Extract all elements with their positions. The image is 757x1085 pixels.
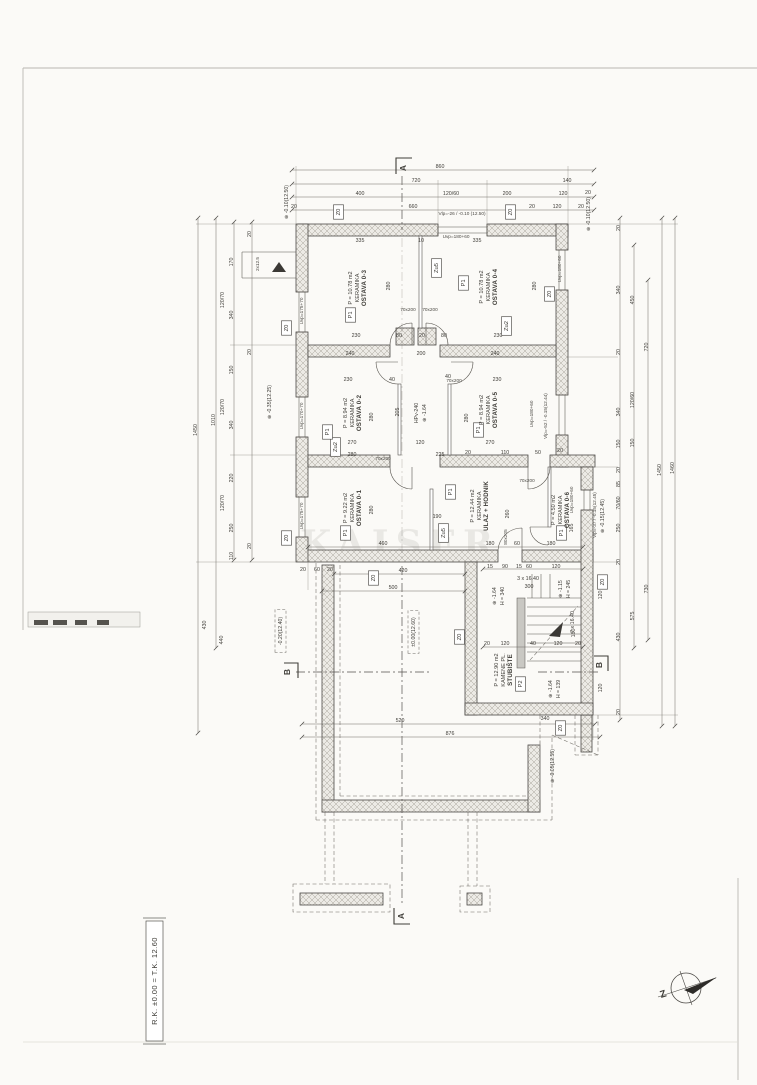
room-area: P = 12.90 m2 <box>494 653 500 686</box>
opening-annotation: Uvp=175+70 <box>299 297 304 324</box>
zone-tag: Z0 <box>598 575 608 589</box>
dimension-label: 10 <box>418 238 424 244</box>
dimension-label: 876 <box>446 731 455 737</box>
zone-tag-label: P1 <box>348 311 354 318</box>
opening-annotation: Uvp=180+60 <box>529 400 534 427</box>
dimension-label: 220 <box>229 474 235 483</box>
section-b-left: B <box>282 669 292 675</box>
dimension-label: 150 <box>616 440 622 449</box>
level-value: ⊕ -0.10(12.50) <box>586 197 592 231</box>
zone-tag-label: P1 <box>476 426 482 433</box>
zone-tag-label: Z0 <box>547 291 553 298</box>
dimension-label: 80 <box>441 333 447 339</box>
dimension-label: 340 <box>229 311 235 320</box>
dimension-label: 1460 <box>670 462 676 474</box>
dimension-label: 300 <box>525 584 534 590</box>
dimension-label: 20 <box>616 559 622 565</box>
level-marker: ±0.00(12.60) <box>408 611 419 654</box>
level-marker: H = 139 <box>556 680 562 698</box>
dimension-label: 430 <box>616 633 622 642</box>
dimension-label: 340 <box>229 421 235 430</box>
dimension-label: 120 <box>553 204 562 210</box>
dimension-label: 260 <box>505 510 511 519</box>
opening-annotation: 2x12.5 <box>255 257 260 271</box>
dimension-label: 500 <box>389 585 398 591</box>
zone-tag: Z0 <box>282 531 292 545</box>
level-marker: ⊕ -0.10(12.50) <box>586 197 592 231</box>
level-value: ⊕ -0.35(12.25) <box>267 385 273 419</box>
level-marker: ⊕ -1.64 <box>492 587 498 605</box>
dimension-label: 180 <box>571 629 577 638</box>
room-name: OSTAVA 0-5 <box>492 391 499 428</box>
dimension-label: 120 <box>554 641 563 647</box>
zone-tag-label: Z0 <box>336 209 342 216</box>
stair-direction-arrow <box>549 622 563 637</box>
zone-tag-label: Zu2 <box>333 442 339 452</box>
zone-tag-label: P1 <box>325 428 331 435</box>
room-name: OSTAVA 0-1 <box>356 489 363 526</box>
dimension-label: 85 <box>616 481 622 487</box>
opening-annotation: 80x205 <box>503 529 508 545</box>
dimension-label: 200 <box>503 191 512 197</box>
dimension-label: 120 <box>416 440 425 446</box>
opening-annotation: Uvp=170+70 <box>299 402 304 429</box>
dimension-label: 270 <box>348 440 357 446</box>
dimension-label: 3 x 16.40 <box>517 576 539 582</box>
dimension-label: 450 <box>630 296 636 305</box>
room-label: P = 12.90 m2KAMENE PL.STUBIŠTE <box>494 653 514 687</box>
dimension-label: 280 <box>369 506 375 515</box>
datum-note: R.K. ±0.00 = T.K. 12.60 <box>150 937 159 1025</box>
floor-plan-drawing: KAISER <box>0 0 757 1080</box>
dimension-label: 20 <box>616 349 622 355</box>
level-marker: H = 245 <box>566 580 572 598</box>
opening-annotation: 70x200 <box>446 378 462 383</box>
room-name: OSTAVA 0-4 <box>492 268 499 305</box>
dimension-label: 20 <box>419 333 425 339</box>
dimension-label: 225 <box>436 452 445 458</box>
dimension-label: 230 <box>352 333 361 339</box>
dimension-label: 340 <box>616 408 622 417</box>
zone-tag-label: P1 <box>343 529 349 536</box>
dimension-label: 340 <box>541 716 550 722</box>
dimension-label: 420 <box>399 568 408 574</box>
zone-tag-label: Z0 <box>284 535 290 542</box>
room-label: P = 8.94 m2KERAMIKAOSTAVA 0-5 <box>479 391 499 428</box>
dimension-label: 20 <box>247 231 253 237</box>
level-marker: -0.20(12.40) <box>275 610 286 653</box>
zone-tag: Zu2 <box>331 438 341 457</box>
room-area: P = 12.44 m2 <box>470 489 476 522</box>
zone-tag: Z0 <box>545 287 555 301</box>
dimension-label: 20 <box>291 204 297 210</box>
dimension-label: 20 <box>300 567 306 573</box>
zone-tag-label: Z0 <box>284 325 290 332</box>
dimension-label: 230 <box>493 377 502 383</box>
zone-tag: P1 <box>323 425 333 439</box>
level-value: ⊕ -0.05(12.55) <box>550 749 556 783</box>
level-value: ⊕ -0.15(12.45) <box>600 499 606 533</box>
zone-tag: Z0 <box>506 205 516 219</box>
left-edge-fragment <box>28 612 140 627</box>
dimension-label: 230 <box>344 377 353 383</box>
level-value: -0.20(12.40) <box>278 617 284 646</box>
level-marker: H = 340 <box>500 587 506 605</box>
dimension-label: 240 <box>346 351 355 357</box>
opening-annotation: 70x200 <box>422 307 438 312</box>
dimension-label: 280 <box>386 282 392 291</box>
dimension-label: 170 <box>229 258 235 267</box>
level-value: ⊕ -1.15 <box>558 580 564 598</box>
opening-annotation: Vlp=-37 / -0.15(12.45) <box>592 492 597 538</box>
level-value: HPv-240 <box>414 403 420 423</box>
dimension-label: 280 <box>369 413 375 422</box>
dimension-label: 110 <box>229 552 235 560</box>
dimension-label: 90 <box>502 564 508 570</box>
dimension-label: 120/70 <box>220 399 226 415</box>
dimension-label: 730 <box>644 585 650 594</box>
dimension-label: 660 <box>409 204 418 210</box>
opening-annotation: Vlp=-52 / -0.15(12.44) <box>543 393 548 439</box>
zone-tag: Z0 <box>455 630 465 644</box>
dimension-label: 20 <box>465 450 471 456</box>
zone-tag-label: Z0 <box>600 579 606 586</box>
room-name: STUBIŠTE <box>506 654 514 686</box>
zone-tag: P1 <box>346 308 356 322</box>
level-value: ⊕ -1.64 <box>492 587 498 605</box>
room-label: P = 9.22 m2KERAMIKAOSTAVA 0-1 <box>343 489 363 526</box>
dimension-label: 150 <box>630 439 636 448</box>
zone-tag-label: P1 <box>448 488 454 495</box>
dimension-label: 120/70 <box>220 292 226 308</box>
dimension-label: 440 <box>219 636 225 645</box>
dimension-label: 20 <box>529 204 535 210</box>
dimension-label: 20 <box>616 709 622 715</box>
level-marker: ⊕ -0.05(12.55) <box>550 749 556 783</box>
dimension-label: 60 <box>526 564 532 570</box>
dimension-label: 120 <box>501 641 510 647</box>
dimension-label: 240 <box>491 351 500 357</box>
dimension-label: 20 <box>616 225 622 231</box>
zone-tag-label: Z0 <box>371 575 377 582</box>
dimension-label: 280 <box>532 282 538 291</box>
dimension-label: 120 <box>559 191 568 197</box>
dimension-label: 1010 <box>211 414 217 426</box>
dimension-label: 50 <box>535 450 541 456</box>
room-area: P = 9.22 m2 <box>343 493 349 523</box>
section-a-bottom: A <box>396 913 406 919</box>
opening-annotation: Uvp=180+60 <box>557 255 562 282</box>
level-marker: ⊕ -0.15(12.45) <box>600 499 606 533</box>
floor-plan-sheet: KAISER <box>0 0 757 1080</box>
opening-annotation: 70x200 <box>400 307 416 312</box>
zone-tag-label: P1 <box>461 279 467 286</box>
dimension-label: 250 <box>229 524 235 533</box>
dimension-label: 20 <box>327 567 333 573</box>
section-b-right: B <box>594 662 604 668</box>
level-marker: ⊕ -1.64 <box>548 680 554 698</box>
room-area: P = 10.78 m2 <box>479 270 485 303</box>
level-value: ⊕ -1.64 <box>422 404 428 422</box>
dimension-label: 40 <box>389 377 395 383</box>
zone-tag: Zu5 <box>439 524 449 543</box>
dimension-label: 150 <box>229 366 235 375</box>
dimension-label: 190 <box>433 514 442 520</box>
level-value: ⊕ -1.64 <box>548 680 554 698</box>
dimension-label: 180 <box>547 541 556 547</box>
dimension-label: 200 <box>417 351 426 357</box>
room-label: P = 10.78 m2KERAMIKAOSTAVA 0-4 <box>479 268 499 305</box>
dimension-label: 70/60 <box>616 496 622 509</box>
room-area: P = 8.94 m2 <box>479 395 485 425</box>
room-area: P = 4.50 m2 <box>551 495 557 525</box>
dimension-label: 120 <box>598 684 604 693</box>
zone-tag: Zu2 <box>502 317 512 336</box>
room-area: P = 8.94 m2 <box>343 398 349 428</box>
zone-tag: P1 <box>341 526 351 540</box>
level-value: ⊕ -0.10(12.50) <box>284 185 290 219</box>
opening-annotation: Uvp=175+70 <box>299 502 304 529</box>
foundation-outlines <box>293 563 598 912</box>
room-name: OSTAVA 0-6 <box>564 491 571 528</box>
opening-annotation: 70x200 <box>375 456 391 461</box>
dimension-label: 205 <box>395 408 401 417</box>
dimension-label: 20 <box>484 641 490 647</box>
zone-tag-label: Zu5 <box>434 263 440 273</box>
dimension-label: 80 <box>396 333 402 339</box>
zone-tag: P1 <box>446 485 456 499</box>
dimension-label: 120 <box>552 564 561 570</box>
room-name: OSTAVA 0-2 <box>356 394 363 431</box>
north-arrow: Z <box>658 971 717 1005</box>
zone-tag: Zu5 <box>432 259 442 278</box>
opening-annotation: Vlp=-26 / -0.10 (12.50) <box>438 211 485 216</box>
dimension-label: 280 <box>348 452 357 458</box>
room-labels: P = 10.78 m2KERAMIKAOSTAVA 0-3P = 10.78 … <box>343 268 571 686</box>
room-name: ULAZ + HODNIK <box>483 481 490 531</box>
dimension-label: 120/70 <box>220 495 226 511</box>
dimension-label: 860 <box>436 164 445 170</box>
dimension-label: 60 <box>514 541 520 547</box>
level-marker: ⊕ -1.64 <box>422 404 428 422</box>
section-a-top: A <box>398 165 408 171</box>
level-marker: HPv-240 <box>414 403 420 423</box>
dimension-label: 120 <box>598 591 604 600</box>
dimension-label: 180 <box>486 541 495 547</box>
north-letter: Z <box>659 988 668 1000</box>
zone-tag: Z0 <box>369 571 379 585</box>
dimension-label: 40 <box>530 641 536 647</box>
zone-tag-label: Zu5 <box>441 528 447 538</box>
dimension-label: 335 <box>356 238 365 244</box>
dimension-label: 270 <box>486 440 495 446</box>
dimension-label: 430 <box>202 621 208 630</box>
dimension-label: 1450 <box>657 464 663 476</box>
dimension-label: 20 <box>247 349 253 355</box>
dimension-label: 110 <box>501 450 509 456</box>
opening-annotation: 70x200 <box>519 478 535 483</box>
zone-tag: P1 <box>459 276 469 290</box>
room-label: P = 10.78 m2KERAMIKAOSTAVA 0-3 <box>348 269 368 306</box>
zone-tag-label: Z0 <box>558 725 564 732</box>
dimension-label: 230 <box>494 333 503 339</box>
zone-tag: Z0 <box>556 721 566 735</box>
level-value: H = 245 <box>566 580 572 598</box>
dimension-label: 720 <box>644 343 650 352</box>
room-label: P = 8.94 m2KERAMIKAOSTAVA 0-2 <box>343 394 363 431</box>
dimension-label: 250 <box>616 524 622 533</box>
dimension-label: 140 <box>563 178 572 184</box>
dimension-label: 20 <box>616 467 622 473</box>
zone-tag-label: Zu2 <box>504 321 510 331</box>
dimension-label: 460 <box>379 541 388 547</box>
dimension-label: 575 <box>630 612 636 621</box>
title-block: R.K. ±0.00 = T.K. 12.60 <box>143 918 166 1044</box>
level-value: H = 340 <box>500 587 506 605</box>
dimension-label: 60 <box>314 567 320 573</box>
dimension-label: 400 <box>356 191 365 197</box>
dimension-label: 20 <box>557 448 563 454</box>
zone-tag-label: Z0 <box>457 634 463 641</box>
level-marker: ⊕ -0.10(12.50) <box>284 185 290 219</box>
exterior-steps <box>242 252 296 278</box>
zone-tag-label: P1 <box>559 529 565 536</box>
dimension-label: 520 <box>396 718 405 724</box>
zone-tag: P2 <box>516 677 526 691</box>
level-marker: ⊕ -0.35(12.25) <box>267 385 273 419</box>
dimension-label: 20 <box>578 204 584 210</box>
dimension-label: 1450 <box>193 424 199 436</box>
opening-annotation: Uvp=180+60 <box>443 234 470 239</box>
dimension-label: 120/60 <box>630 392 636 408</box>
room-area: P = 10.78 m2 <box>348 271 354 304</box>
dimension-label: 720 <box>412 178 421 184</box>
dimension-label: 20 <box>575 641 581 647</box>
zone-tag-label: P2 <box>518 680 524 687</box>
zone-tag: Z0 <box>334 205 344 219</box>
dimension-labels: 860720140400120/602001202020660201202033… <box>193 164 676 737</box>
level-value: H = 139 <box>556 680 562 698</box>
level-marker: ⊕ -1.15 <box>558 580 564 598</box>
room-label: P = 4.50 m2KERAMIKAOSTAVA 0-6 <box>551 491 571 528</box>
zone-tag-label: Z0 <box>508 209 514 216</box>
dimension-label: 120/60 <box>443 191 459 197</box>
room-name: OSTAVA 0-3 <box>361 269 368 306</box>
dimension-label: 20 <box>247 543 253 549</box>
dimension-label: 280 <box>464 414 470 423</box>
dimension-label: 20 <box>585 190 591 196</box>
dimension-label: 15 <box>516 564 522 570</box>
dimension-label: 340 <box>616 286 622 295</box>
zone-tag: Z0 <box>282 321 292 335</box>
dimension-label: 15 <box>487 564 493 570</box>
dimension-label: 335 <box>473 238 482 244</box>
level-value: ±0.00(12.60) <box>411 617 417 647</box>
